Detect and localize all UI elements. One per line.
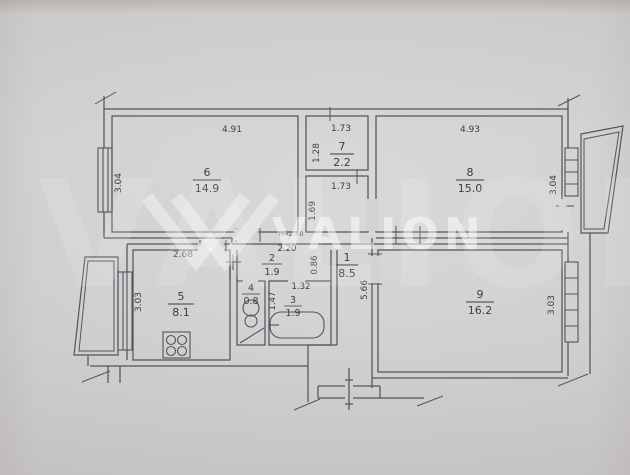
scanned-floor-plan-paper: 6 14.9 7 2.2 8 15.0 5 8.1 4 0.8 3 1.9	[0, 0, 630, 475]
watermark: VALION VALION	[38, 149, 630, 321]
dim-room8-width: 4.93	[460, 125, 480, 135]
dim-room7-width: 1.73	[331, 124, 351, 134]
floor-plan-drawing: 6 14.9 7 2.2 8 15.0 5 8.1 4 0.8 3 1.9	[0, 0, 630, 475]
entrance-door	[318, 368, 424, 410]
watermark-bold-text: VALION	[272, 209, 486, 260]
dim-room6-width: 4.91	[222, 125, 242, 135]
stove-icon	[163, 332, 190, 358]
